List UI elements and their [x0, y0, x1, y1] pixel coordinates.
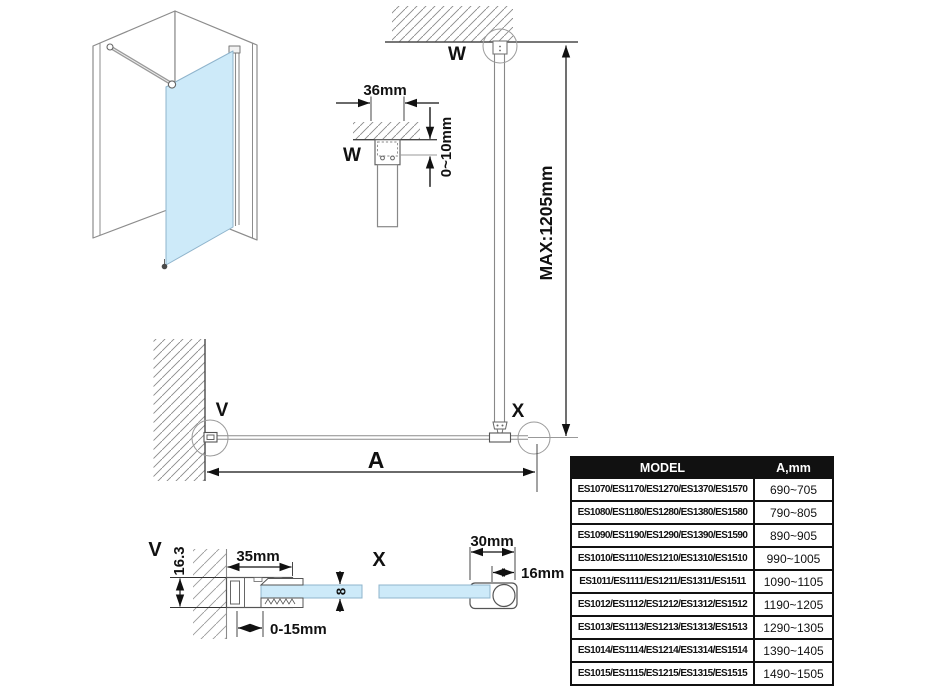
- x-detail-drawing: X 30mm 16mm: [372, 533, 564, 609]
- dim-bracket-width-label: 36mm: [363, 82, 406, 99]
- a-mm-cell: 1390~1405: [754, 639, 833, 662]
- model-cell: ES1080/ES1180/ES1280/ES1380/ES1580: [571, 501, 754, 524]
- screw-hole: [381, 156, 385, 160]
- label-v-plan: V: [216, 400, 229, 421]
- label-w-detail: W: [343, 145, 361, 166]
- floor-foot: [162, 264, 168, 270]
- dim-max-bar-length-label: MAX:1205mm: [536, 166, 556, 281]
- ceiling-hatch: [353, 122, 420, 140]
- label-x-plan: X: [512, 401, 525, 422]
- table-row: ES1090/ES1190/ES1290/ES1390/ES1590 890~9…: [571, 524, 833, 547]
- dim-a-label: A: [368, 447, 385, 473]
- dim-wall-profile-width-label: 35mm: [236, 548, 279, 565]
- bar-wall-mount: [107, 44, 113, 50]
- elevation-view: W MAX:1205mm: [385, 6, 578, 436]
- w-detail-drawing: 36mm 0~10mm W: [336, 82, 455, 227]
- table-row: ES1010/ES1110/ES1210/ES1310/ES1510 990~1…: [571, 547, 833, 570]
- table-header-amm: A,mm: [754, 457, 833, 478]
- model-cell: ES1015/ES1115/ES1215/ES1315/ES1515: [571, 662, 754, 685]
- dim-glass-thickness-label: 8: [334, 588, 349, 595]
- bar-glass-clamp: [168, 81, 175, 88]
- model-cell: ES1010/ES1110/ES1210/ES1310/ES1510: [571, 547, 754, 570]
- table-row: ES1011/ES1111/ES1211/ES1311/ES1511 1090~…: [571, 570, 833, 593]
- support-bar-section: [378, 165, 398, 227]
- model-cell: ES1070/ES1170/ES1270/ES1370/ES1570: [571, 478, 754, 501]
- dim-end-profile-width-label: 30mm: [470, 533, 513, 550]
- spec-table: MODEL A,mm ES1070/ES1170/ES1270/ES1370/E…: [570, 456, 834, 686]
- clamp-flange: [261, 579, 303, 586]
- a-mm-cell: 690~705: [754, 478, 833, 501]
- model-cell: ES1011/ES1111/ES1211/ES1311/ES1511: [571, 570, 754, 593]
- model-cell: ES1013/ES1113/ES1213/ES1313/ES1513: [571, 616, 754, 639]
- bar-clamp: [493, 422, 507, 429]
- table-row: ES1014/ES1114/ES1214/ES1314/ES1514 1390~…: [571, 639, 833, 662]
- ceiling-hatch: [392, 6, 513, 42]
- ceiling-bracket: [375, 140, 400, 165]
- a-mm-cell: 890~905: [754, 524, 833, 547]
- model-size-table: MODEL A,mm ES1070/ES1170/ES1270/ES1370/E…: [570, 456, 834, 686]
- v-detail-drawing: V 35mm 16.3 0-15mm 8: [148, 539, 362, 639]
- table-row: ES1013/ES1113/ES1213/ES1313/ES1513 1290~…: [571, 616, 833, 639]
- table-header-row: MODEL A,mm: [571, 457, 833, 478]
- table-header-model: MODEL: [571, 457, 754, 478]
- glass-section: [379, 585, 490, 598]
- model-cell: ES1014/ES1114/ES1214/ES1314/ES1514: [571, 639, 754, 662]
- a-mm-cell: 1290~1305: [754, 616, 833, 639]
- wall-profile-plan: [204, 433, 217, 443]
- installation-diagram-page: 36mm 0~10mm W W MAX:1205mm: [0, 0, 928, 686]
- left-wall: [93, 11, 175, 238]
- table-row: ES1015/ES1115/ES1215/ES1315/ES1515 1490~…: [571, 662, 833, 685]
- glass-clamp-block: [490, 433, 511, 442]
- a-mm-cell: 1090~1105: [754, 570, 833, 593]
- dim-bar-diameter-label: 16mm: [521, 565, 564, 582]
- stabilizer-tube-section: [493, 585, 515, 607]
- plan-view: V X A: [154, 339, 579, 492]
- ceiling-mount: [493, 41, 507, 54]
- screw-hole: [391, 156, 395, 160]
- table-row: ES1012/ES1112/ES1212/ES1312/ES1512 1190~…: [571, 593, 833, 616]
- model-cell: ES1012/ES1112/ES1212/ES1312/ES1512: [571, 593, 754, 616]
- a-mm-cell: 790~805: [754, 501, 833, 524]
- a-mm-cell: 1190~1205: [754, 593, 833, 616]
- x-detail-marker-circle: [518, 422, 550, 454]
- wall-hatch: [154, 339, 206, 481]
- glass-plan-line: [217, 436, 528, 440]
- glass-panel: [166, 51, 233, 265]
- label-w-elevation: W: [448, 44, 466, 65]
- dim-wall-adjustment-label: 0-15mm: [270, 621, 327, 638]
- table-row: ES1070/ES1170/ES1270/ES1370/ES1570 690~7…: [571, 478, 833, 501]
- model-cell: ES1090/ES1190/ES1290/ES1390/ES1590: [571, 524, 754, 547]
- label-v-detail: V: [148, 539, 162, 561]
- dim-ceiling-gap-label: 0~10mm: [438, 117, 455, 177]
- label-x-detail: X: [372, 549, 386, 571]
- table-row: ES1080/ES1180/ES1280/ES1380/ES1580 790~8…: [571, 501, 833, 524]
- wall-hatch: [193, 549, 226, 639]
- a-mm-cell: 1490~1505: [754, 662, 833, 685]
- isometric-view: [93, 11, 257, 269]
- a-mm-cell: 990~1005: [754, 547, 833, 570]
- dim-wall-profile-depth-label: 16.3: [171, 546, 188, 575]
- support-bar-elevation: [495, 54, 505, 422]
